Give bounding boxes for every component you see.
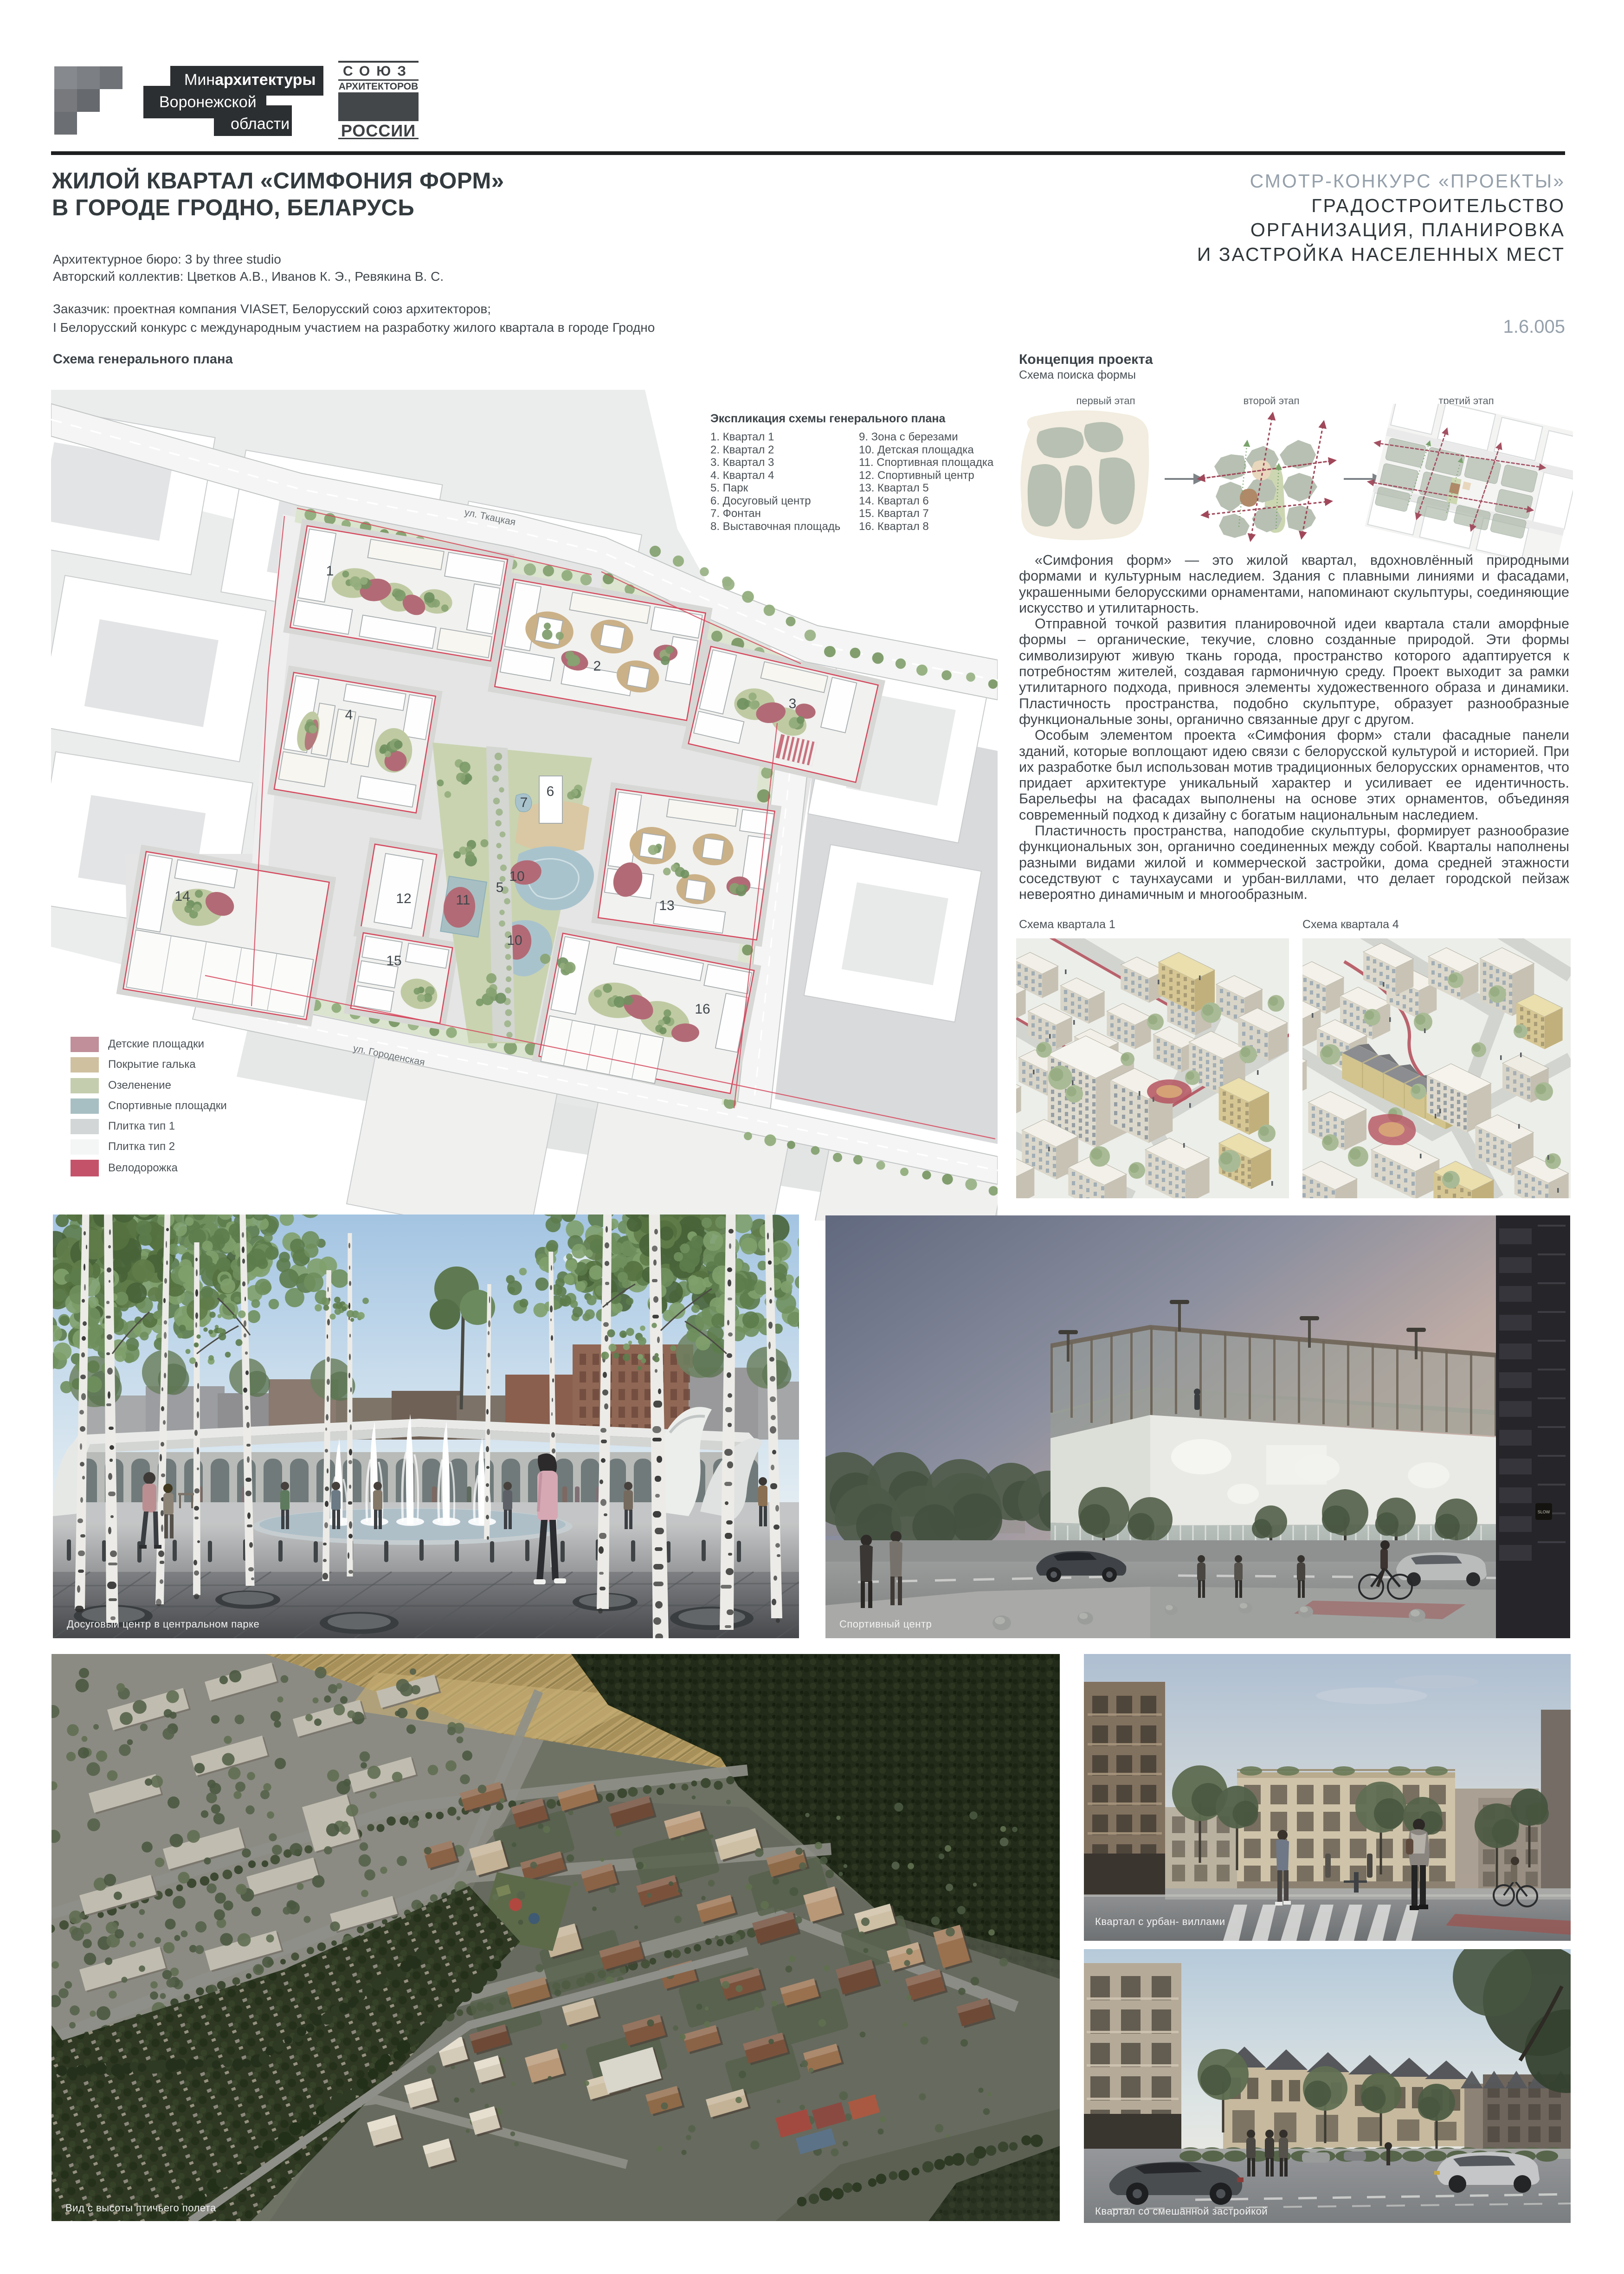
svg-text:12: 12 [396, 891, 411, 906]
svg-text:2: 2 [593, 659, 601, 674]
svg-text:6: 6 [547, 784, 554, 799]
svg-text:7: 7 [520, 795, 528, 810]
svg-text:13: 13 [659, 898, 674, 913]
svg-text:10: 10 [509, 869, 524, 884]
svg-text:14: 14 [174, 889, 190, 904]
svg-text:4: 4 [345, 707, 353, 723]
svg-text:10: 10 [507, 933, 522, 948]
svg-text:15: 15 [386, 953, 401, 969]
svg-text:5: 5 [496, 880, 504, 895]
svg-text:1: 1 [326, 563, 334, 579]
svg-text:3: 3 [789, 696, 797, 711]
svg-text:SLOW: SLOW [1538, 1510, 1550, 1514]
svg-text:11: 11 [456, 892, 470, 908]
svg-text:16: 16 [695, 1001, 710, 1017]
